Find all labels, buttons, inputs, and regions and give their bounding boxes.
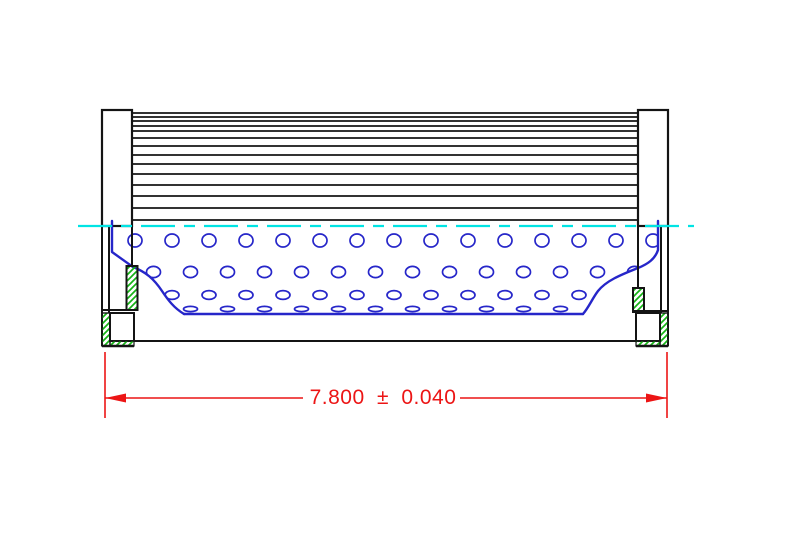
filter-element-technical-drawing: 7.800 ± 0.040: [0, 0, 789, 546]
drawing-background: [0, 0, 789, 546]
drawing-canvas: 7.800 ± 0.040: [0, 0, 789, 546]
left-end-cap-flange: [102, 110, 132, 226]
right-end-cap-flange: [638, 110, 668, 226]
dimension-text: 7.800 ± 0.040: [310, 386, 457, 409]
